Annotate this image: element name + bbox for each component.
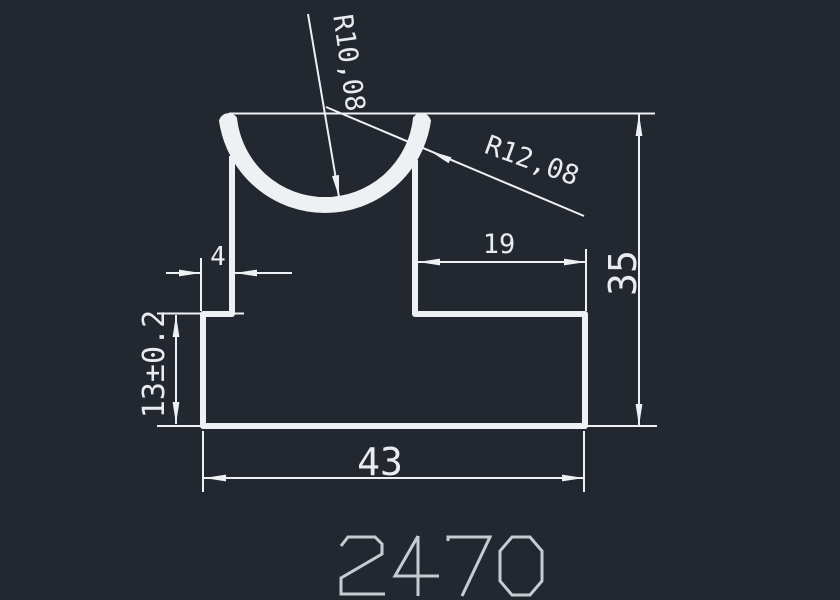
dim-text-35: 35 [601, 250, 645, 296]
cad-drawing-canvas: 4 19 43 35 13±0.2 R10,08 R12,08 2470 [0, 0, 840, 600]
drawing-background [0, 0, 840, 600]
dim-text-19: 19 [483, 229, 516, 260]
dim-text-43: 43 [357, 440, 403, 484]
dim-text-13: 13±0.2 [137, 310, 172, 418]
dim-text-4: 4 [210, 242, 226, 272]
technical-drawing: 4 19 43 35 13±0.2 R10,08 R12,08 2470 [0, 0, 840, 600]
